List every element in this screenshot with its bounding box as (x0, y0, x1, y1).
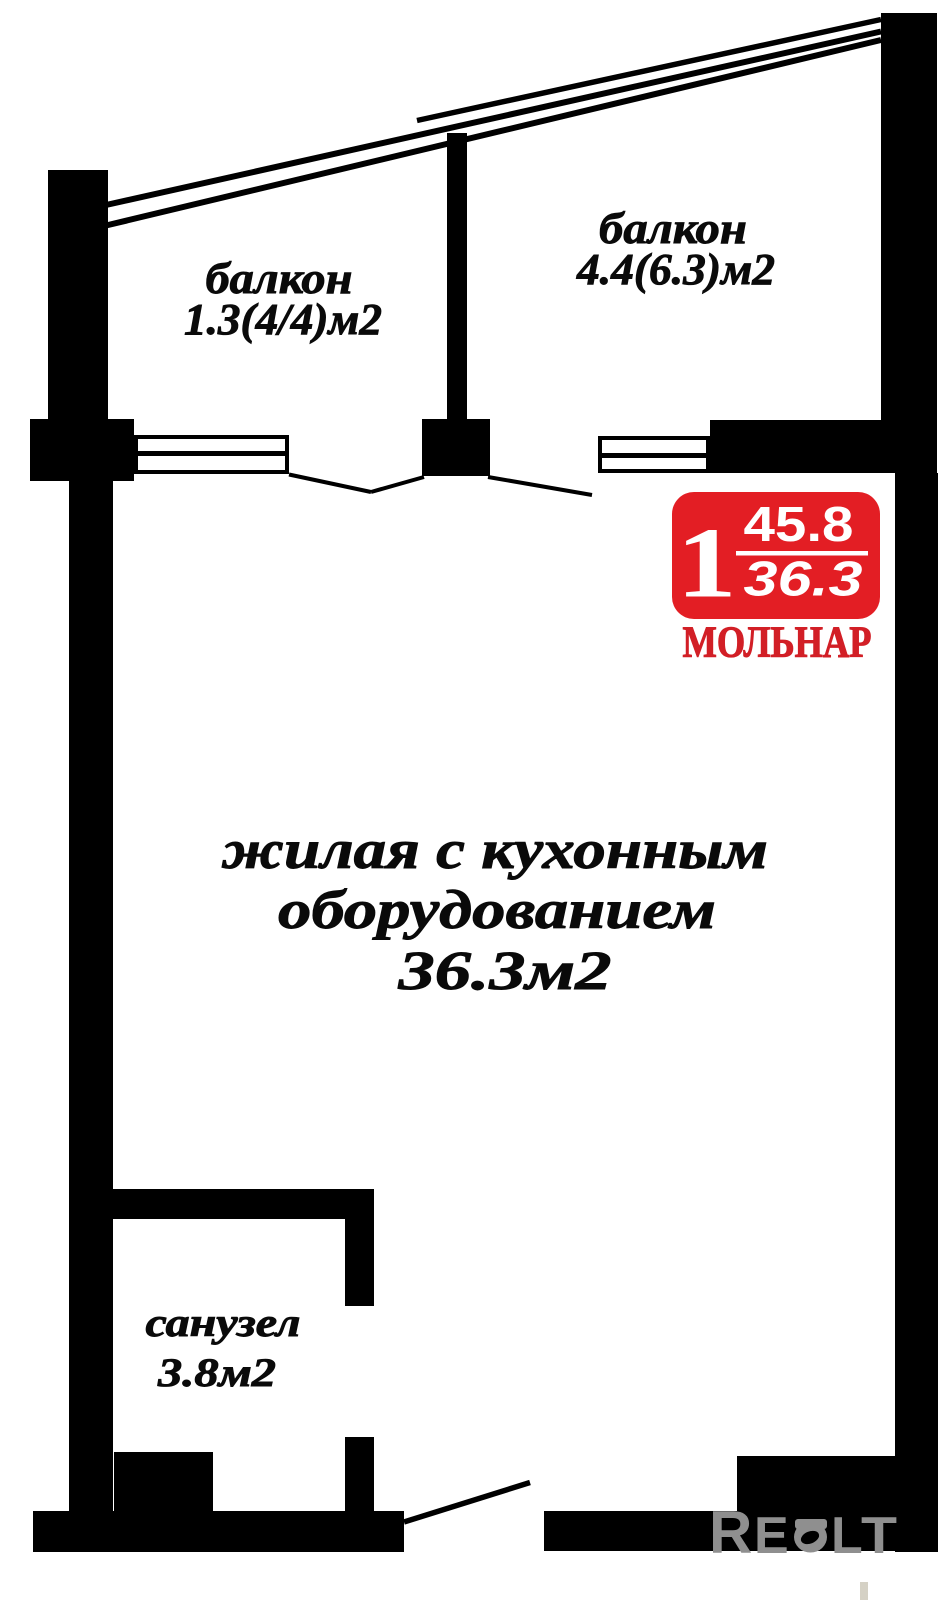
svg-text:R: R (709, 1499, 752, 1566)
svg-text:4.4(6.3)м2: 4.4(6.3)м2 (576, 245, 775, 294)
svg-text:E: E (754, 1507, 789, 1565)
svg-text:1.3(4/4)м2: 1.3(4/4)м2 (184, 295, 382, 344)
svg-text:36.3: 36.3 (744, 553, 863, 607)
svg-text:оборудованием: оборудованием (278, 879, 716, 940)
svg-text:3.8м2: 3.8м2 (157, 1350, 276, 1395)
svg-text:жилая с кухонным: жилая с кухонным (221, 819, 768, 880)
svg-text:45.8: 45.8 (744, 498, 854, 552)
svg-text:T: T (861, 1507, 897, 1565)
svg-text:МОЛЬНАР: МОЛЬНАР (683, 618, 872, 667)
svg-text:L: L (831, 1507, 863, 1565)
svg-text:санузел: санузел (146, 1300, 301, 1345)
svg-text:1: 1 (677, 507, 737, 619)
svg-text:36.3м2: 36.3м2 (397, 940, 611, 1001)
